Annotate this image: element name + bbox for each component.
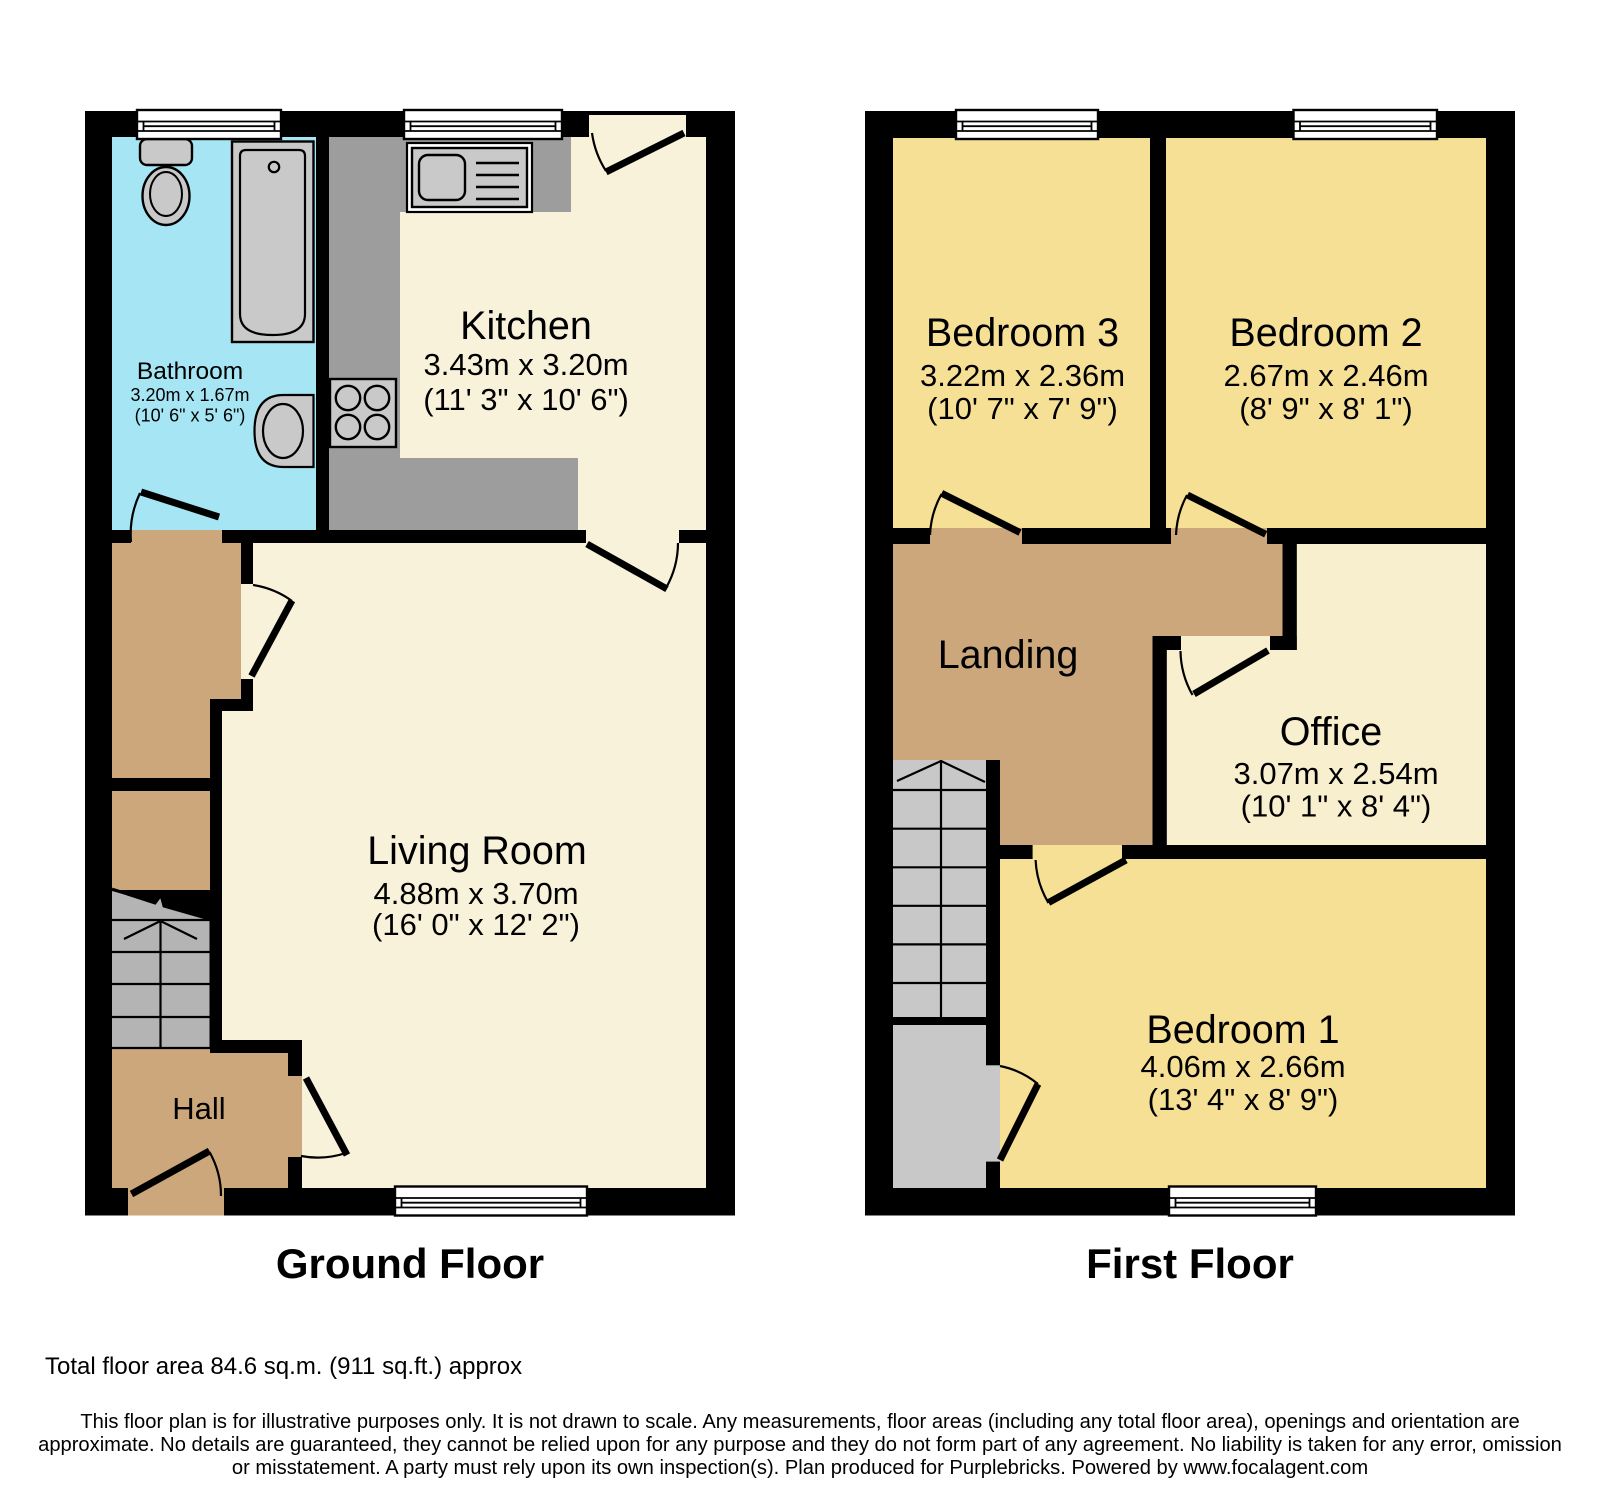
svg-text:Total floor area 84.6 sq.m. (9: Total floor area 84.6 sq.m. (911 sq.ft.)… bbox=[45, 1353, 522, 1380]
svg-text:Ground Floor: Ground Floor bbox=[276, 1240, 544, 1287]
svg-text:(16' 0" x 12' 2"): (16' 0" x 12' 2") bbox=[372, 907, 580, 942]
svg-text:(13' 4" x 8' 9"): (13' 4" x 8' 9") bbox=[1148, 1082, 1339, 1117]
svg-text:Office: Office bbox=[1280, 710, 1382, 754]
svg-text:4.88m x 3.70m: 4.88m x 3.70m bbox=[373, 876, 578, 911]
svg-text:2.67m x 2.46m: 2.67m x 2.46m bbox=[1223, 358, 1428, 393]
svg-text:approximate. No details are gu: approximate. No details are guaranteed, … bbox=[38, 1434, 1562, 1456]
svg-text:(11' 3" x 10' 6"): (11' 3" x 10' 6") bbox=[423, 382, 629, 417]
svg-text:(10' 6" x 5' 6"): (10' 6" x 5' 6") bbox=[135, 406, 246, 426]
svg-text:Bathroom: Bathroom bbox=[137, 358, 243, 385]
svg-text:3.07m x 2.54m: 3.07m x 2.54m bbox=[1233, 756, 1438, 791]
svg-text:4.06m x 2.66m: 4.06m x 2.66m bbox=[1140, 1049, 1345, 1084]
svg-text:This floor plan is for illustr: This floor plan is for illustrative purp… bbox=[80, 1411, 1519, 1433]
svg-text:(10' 1" x 8' 4"): (10' 1" x 8' 4") bbox=[1241, 789, 1432, 824]
svg-text:Living Room: Living Room bbox=[367, 829, 587, 873]
svg-text:Bedroom 1: Bedroom 1 bbox=[1146, 1008, 1339, 1052]
svg-text:Landing: Landing bbox=[938, 633, 1079, 677]
svg-text:3.43m x 3.20m: 3.43m x 3.20m bbox=[423, 347, 628, 382]
svg-text:or misstatement. A party must: or misstatement. A party must rely upon … bbox=[232, 1457, 1368, 1479]
svg-text:Hall: Hall bbox=[172, 1091, 225, 1126]
svg-text:3.20m x 1.67m: 3.20m x 1.67m bbox=[130, 385, 249, 405]
svg-text:Bedroom 2: Bedroom 2 bbox=[1229, 311, 1422, 355]
svg-text:Bedroom 3: Bedroom 3 bbox=[926, 311, 1119, 355]
svg-text:(8' 9" x 8' 1"): (8' 9" x 8' 1") bbox=[1239, 391, 1412, 426]
svg-text:3.22m x 2.36m: 3.22m x 2.36m bbox=[920, 358, 1125, 393]
svg-text:First Floor: First Floor bbox=[1086, 1240, 1294, 1287]
svg-text:Kitchen: Kitchen bbox=[460, 304, 592, 348]
svg-text:(10' 7" x 7' 9"): (10' 7" x 7' 9") bbox=[927, 391, 1118, 426]
